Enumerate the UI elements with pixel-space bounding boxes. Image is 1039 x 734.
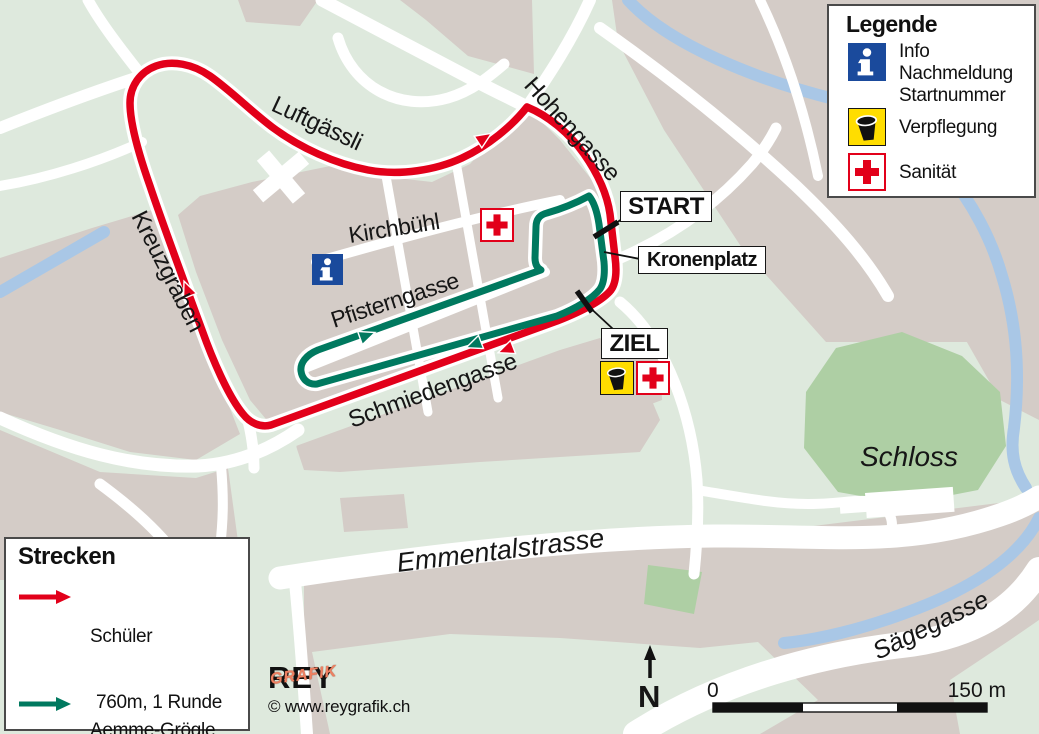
kronenplatz-marker: Kronenplatz bbox=[638, 246, 766, 274]
legend-info-line: Startnummer bbox=[899, 85, 1013, 107]
ziel-services bbox=[600, 361, 670, 395]
info-icon bbox=[848, 43, 886, 81]
schloss-hill bbox=[804, 332, 1006, 504]
legend-info-text: Info Nachmeldung Startnummer bbox=[899, 41, 1013, 107]
rey-grafik-logo: REY GRAFIK bbox=[268, 660, 378, 700]
refreshment-icon bbox=[848, 108, 886, 146]
legend-panel: Legende Info Nachmeldung Startnummer Ver… bbox=[827, 4, 1036, 198]
road bbox=[88, 0, 142, 76]
route-name: Schüler bbox=[90, 626, 237, 648]
first-aid-icon bbox=[636, 361, 670, 395]
scale-min: 0 bbox=[707, 679, 719, 702]
road bbox=[0, 142, 142, 186]
aemme-route-arrow-icon bbox=[19, 697, 71, 711]
legend-verpflegung-label: Verpflegung bbox=[899, 117, 997, 139]
scale-max: 150 m bbox=[948, 679, 1006, 702]
building-block bbox=[400, 0, 534, 74]
legend-info-line: Info bbox=[899, 41, 1013, 63]
legend-info-line: Nachmeldung bbox=[899, 63, 1013, 85]
route-name: Aemme-Grögle bbox=[90, 720, 221, 734]
legend-sanitaet-label: Sanität bbox=[899, 162, 956, 184]
aemme-route-info: Aemme-Grögle 460 m, 1 Runde bbox=[90, 676, 221, 734]
course-map: Luftgässli Hohengasse Kreuzgraben Kirchb… bbox=[0, 0, 1039, 734]
road bbox=[220, 466, 223, 548]
building-block bbox=[238, 0, 318, 26]
copyright-text: © www.reygrafik.ch bbox=[268, 697, 410, 717]
refreshment-icon bbox=[600, 361, 634, 395]
start-marker: START bbox=[620, 191, 712, 222]
routes-panel: Strecken Schüler 760m, 1 Runde 1480m, 2 … bbox=[4, 537, 250, 731]
north-label: N bbox=[638, 679, 660, 714]
place-label-schloss: Schloss bbox=[860, 441, 958, 472]
ziel-marker: ZIEL bbox=[601, 328, 668, 359]
info-icon bbox=[312, 254, 343, 285]
routes-panel-title: Strecken bbox=[18, 543, 115, 571]
first-aid-icon bbox=[848, 153, 886, 191]
schueler-route-arrow-icon bbox=[19, 590, 71, 604]
road bbox=[0, 76, 142, 128]
first-aid-icon bbox=[480, 208, 514, 242]
building-block bbox=[340, 494, 408, 532]
legend-title: Legende bbox=[846, 11, 937, 38]
